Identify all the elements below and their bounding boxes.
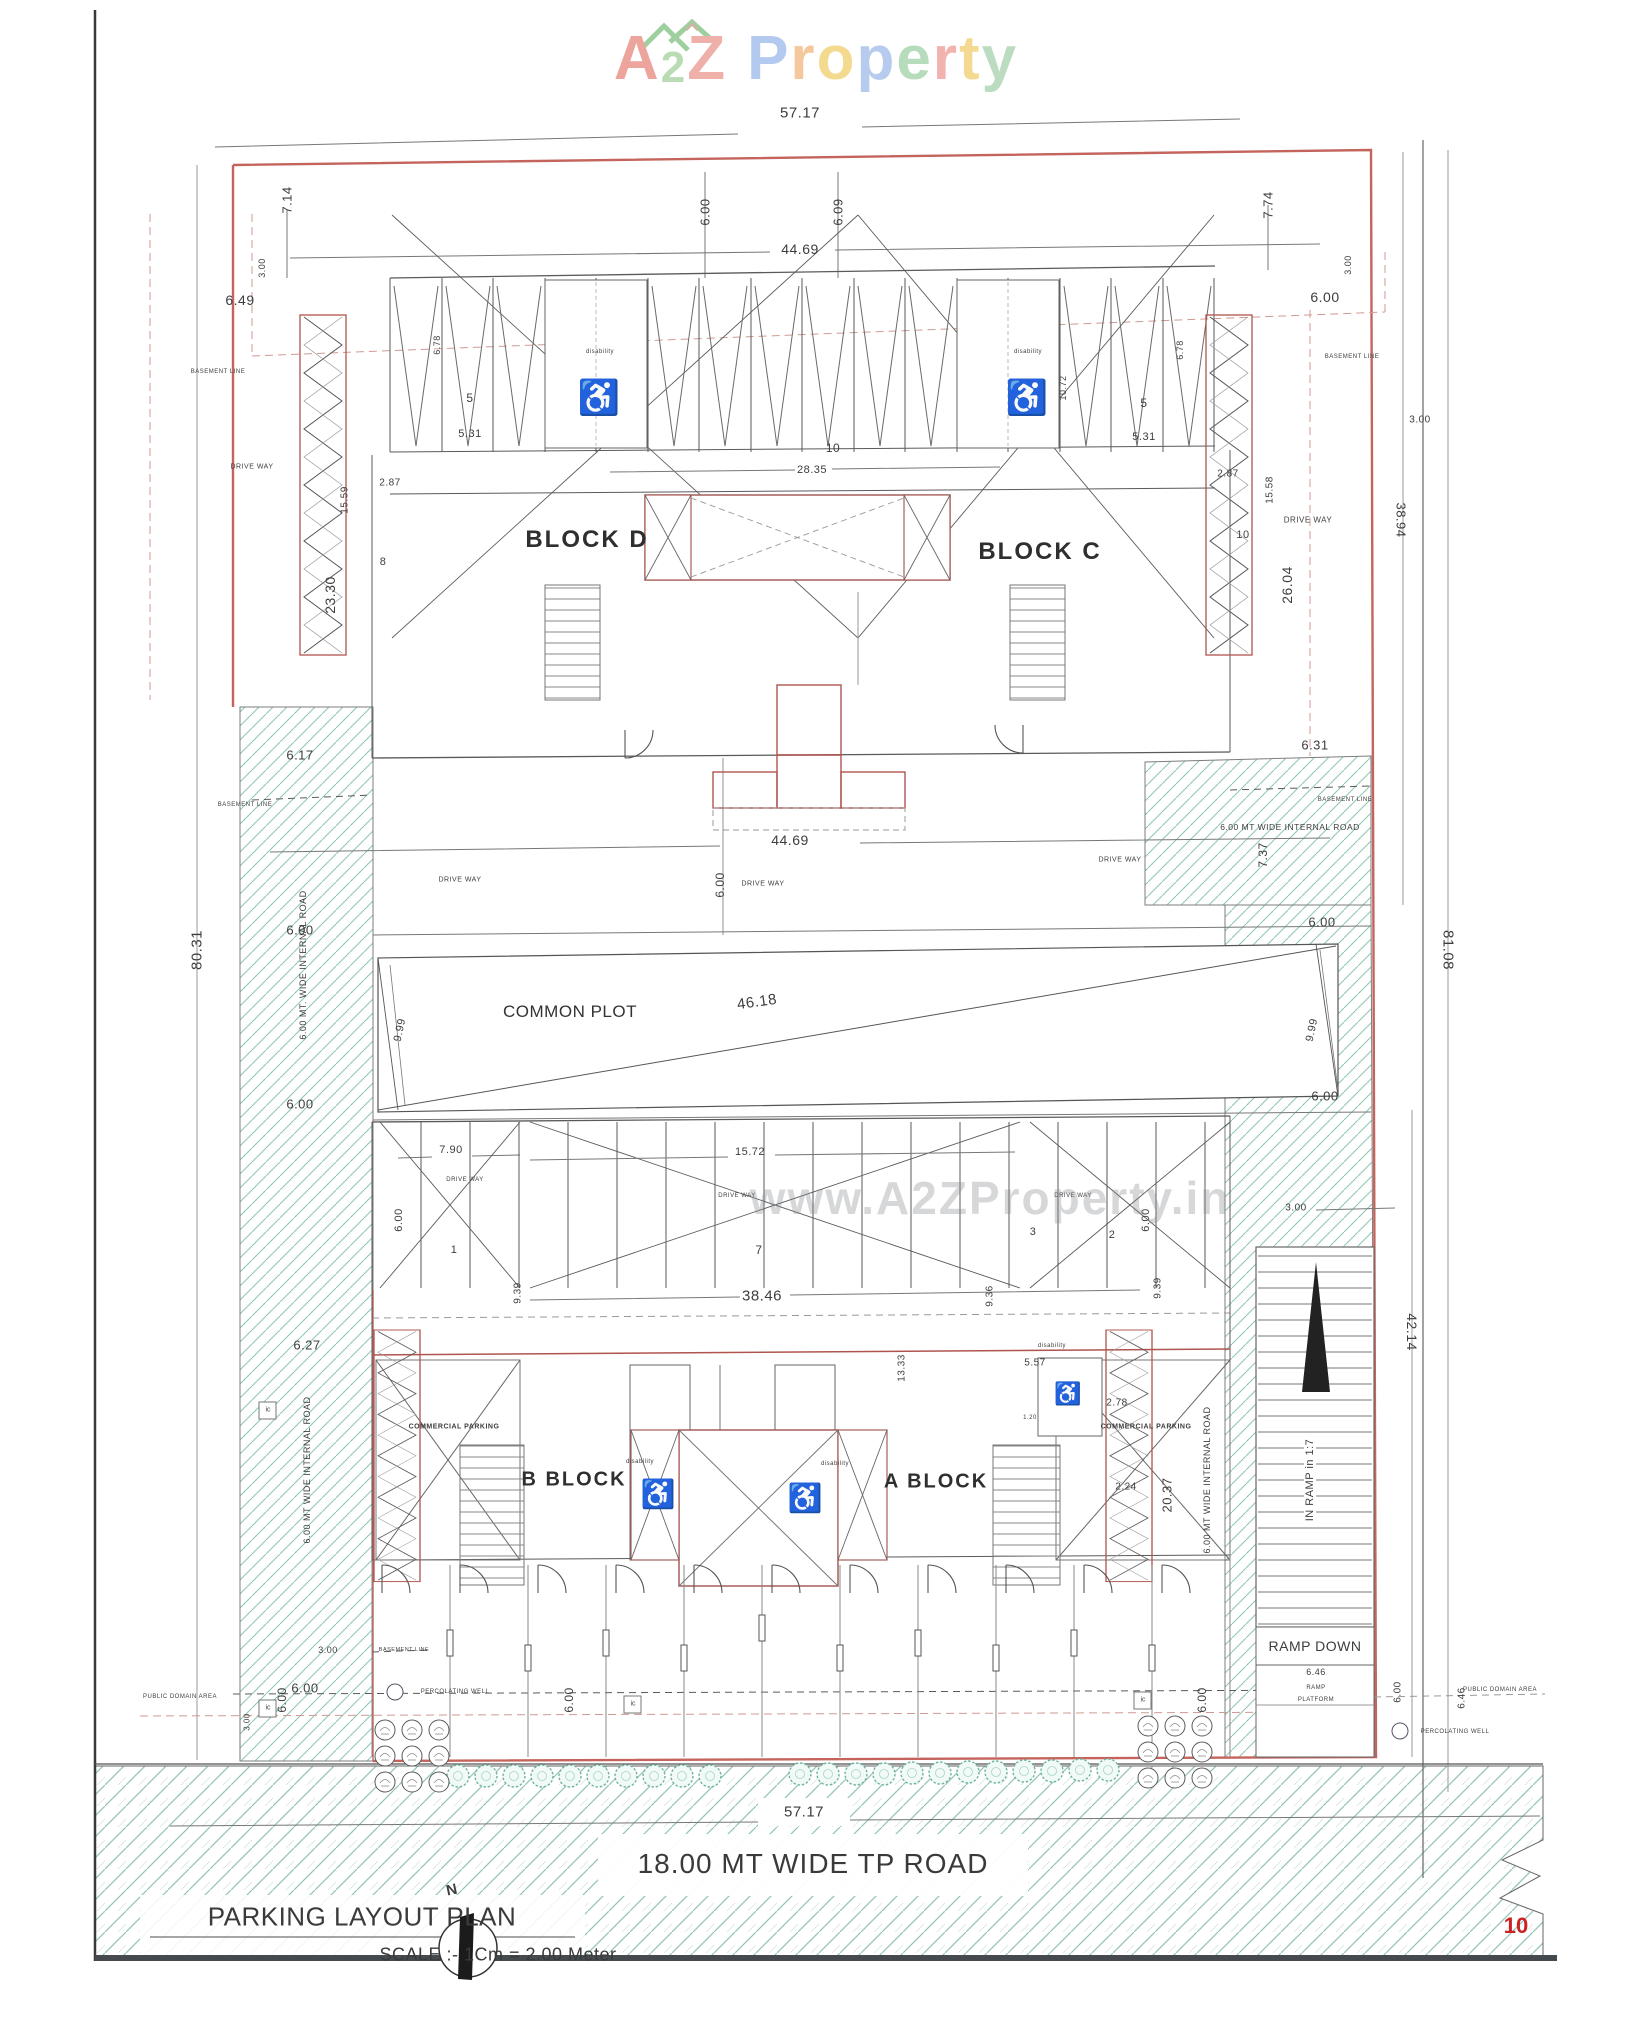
zigzag-stalls-lower-right — [1106, 1330, 1152, 1582]
dim: 6.00 — [291, 1681, 318, 1696]
dim: 5.57 — [1024, 1358, 1045, 1369]
zigzag-stalls-lower-left — [374, 1330, 420, 1582]
dim: 15.59 — [340, 486, 351, 514]
logo-letter: P — [747, 28, 788, 90]
drive-way-label: DRIVE WAY — [741, 881, 784, 888]
dim: 6.00 — [1393, 1681, 1404, 1702]
shrub-cluster-left — [375, 1720, 449, 1792]
drive-way-label: DRIVE WAY — [1098, 857, 1141, 864]
inspection-chamber-label: ic — [265, 1705, 270, 1712]
dim: 20.37 — [1160, 1477, 1175, 1512]
stall-number: 3 — [1030, 1226, 1037, 1238]
disability-label: disability — [586, 349, 614, 355]
internal-road-label: 6.00 MT. WIDE INTERNAL ROAD — [298, 890, 308, 1039]
basement-line-label: BASEMENT LINE — [218, 802, 272, 808]
dim: 2.87 — [379, 478, 400, 489]
dim: 3.00 — [318, 1645, 338, 1655]
inspection-chamber-label: ic — [1140, 1697, 1145, 1704]
drive-way-label: DRIVE WAY — [438, 877, 481, 884]
dim: 44.69 — [771, 832, 809, 848]
dim: 10.72 — [1058, 375, 1068, 400]
percolating-well-label: PERCOLATING WELL — [1421, 1729, 1490, 1735]
dim: 6.00 — [713, 872, 727, 897]
basement-line-label: BASEMENT LINE — [1325, 354, 1379, 360]
common-plot-label: COMMON PLOT — [503, 1002, 637, 1022]
staircase-b-block — [460, 1445, 524, 1585]
dim: 6.00 — [393, 1208, 405, 1231]
basement-line-label: BASEMENT LINE — [191, 369, 245, 375]
dim: 3.00 — [1343, 255, 1353, 275]
dim: 9.36 — [985, 1285, 996, 1306]
logo-letter: Z — [687, 28, 725, 90]
dim: 6.78 — [1175, 340, 1185, 360]
dim: 7.14 — [280, 186, 295, 213]
dim: 7.90 — [439, 1144, 462, 1156]
sheet-scale: SCALE :- 1Cm = 2.00 Meter — [379, 1945, 616, 1966]
drive-way-label: DRIVE WAY — [230, 464, 273, 471]
public-domain-label: PUBLIC DOMAIN AREA — [143, 1694, 217, 1700]
logo-letter: y — [982, 28, 1016, 90]
block-c-label: BLOCK C — [978, 538, 1101, 566]
logo-letter: r — [790, 28, 814, 90]
dim: 6.49 — [225, 292, 254, 308]
wheelchair-icon: ♿ — [1006, 378, 1048, 418]
dim: 2.24 — [1115, 1482, 1136, 1493]
dim: 6.09 — [831, 198, 846, 225]
dim: 6.31 — [1301, 738, 1328, 753]
logo-letter: A — [614, 28, 659, 90]
dim: 6.00 — [1308, 915, 1335, 930]
dim: 3.00 — [257, 258, 267, 278]
dim-plot-height-right: 81.08 — [1440, 930, 1457, 970]
dim: 1.20 — [1023, 1415, 1037, 1421]
disability-label: disability — [626, 1459, 654, 1465]
commercial-parking-label: COMMERCIAL PARKING — [409, 1424, 500, 1431]
dim: 9.39 — [1153, 1277, 1164, 1298]
staircase-block-c — [1010, 585, 1065, 700]
dim: 6.00 — [1195, 1687, 1209, 1712]
stall-number: 5 — [466, 391, 473, 405]
basement-line-label: BASEMENT LINE — [379, 1647, 429, 1653]
stall-number: 8 — [380, 556, 387, 568]
dim-plot-height-left: 80.31 — [189, 930, 206, 970]
b-block-label: B BLOCK — [521, 1469, 626, 1492]
dim: 38.46 — [742, 1288, 782, 1305]
sheet-title: PARKING LAYOUT PLAN — [208, 1902, 517, 1933]
dim: 26.04 — [1279, 566, 1295, 604]
internal-road-label: 6.00 MT WIDE INTERNAL ROAD — [302, 1396, 312, 1543]
inspection-chamber-label: ic — [265, 1407, 270, 1414]
stall-number: 7 — [755, 1243, 762, 1257]
dim: 2.87 — [1217, 469, 1238, 480]
tp-road-label: 18.00 MT WIDE TP ROAD — [638, 1848, 989, 1880]
parking-layout-sheet: 57.17 44.69 7.14 6.00 6.09 7.74 3.00 3.0… — [0, 0, 1652, 2027]
ramp-label: RAMP — [1306, 1685, 1325, 1691]
dim: 6.00 — [1310, 289, 1339, 305]
dim: 6.27 — [293, 1338, 320, 1353]
dim-plot-width-top: 57.17 — [780, 105, 820, 122]
dim: 6.78 — [432, 335, 442, 355]
disability-label: disability — [821, 1461, 849, 1467]
a-block-label: A BLOCK — [884, 1471, 988, 1494]
dim: 13.33 — [897, 1354, 908, 1382]
percolating-well-icon — [1392, 1723, 1408, 1739]
dim: 7.74 — [1261, 191, 1276, 218]
dim: 2.78 — [1106, 1398, 1127, 1409]
dim: 28.35 — [797, 464, 827, 476]
dim: 3.00 — [1285, 1203, 1306, 1214]
wheelchair-icon: ♿ — [578, 378, 620, 418]
dim-building-width-top: 44.69 — [781, 241, 819, 257]
ramp-down-label: RAMP DOWN — [1269, 1638, 1362, 1654]
entrance-porch — [713, 685, 905, 808]
dim: 5.31 — [1132, 431, 1155, 443]
dim: 23.30 — [322, 576, 338, 614]
stall-number: 2 — [1109, 1229, 1116, 1241]
shop-windows — [447, 1615, 1155, 1671]
dim: 38.94 — [1394, 502, 1409, 537]
wheelchair-icon: ♿ — [1054, 1381, 1081, 1407]
logo-letter: p — [856, 28, 894, 90]
drive-way-label: DRIVE WAY — [446, 1177, 484, 1183]
percolating-well-icon — [387, 1684, 403, 1700]
shrub-cluster-right — [1138, 1716, 1212, 1788]
inspection-chamber-label: ic — [630, 1701, 635, 1708]
commercial-parking-label: COMMERCIAL PARKING — [1101, 1424, 1192, 1431]
dim: 6.00 — [286, 1097, 313, 1112]
dim: 3.00 — [1409, 415, 1430, 426]
stall-number: 5 — [1140, 396, 1147, 410]
logo-letter: o — [817, 28, 855, 90]
staircase-block-d — [545, 585, 600, 700]
internal-road-left-hatch — [240, 707, 373, 1761]
watermark: www.A2ZProperty.in — [750, 1171, 1231, 1225]
common-plot — [378, 944, 1338, 1112]
dim: 3.00 — [243, 1713, 252, 1731]
logo-letter: r — [933, 28, 957, 90]
dim: 7.37 — [1256, 842, 1270, 867]
public-domain-label: PUBLIC DOMAIN AREA — [1463, 1687, 1537, 1693]
percolating-well-label: PERCOLATING WELL — [421, 1689, 490, 1695]
disability-label: disability — [1014, 349, 1042, 355]
dim: 6.00 — [698, 198, 713, 225]
dim: 15.58 — [1265, 476, 1276, 504]
stall-number: 1 — [451, 1244, 458, 1256]
dim: 15.72 — [735, 1146, 765, 1158]
stall-number: 10 — [826, 441, 840, 455]
dim: 6.00 — [275, 1687, 289, 1712]
dim: 6.00 — [562, 1687, 576, 1712]
dim: 42.14 — [1404, 1313, 1420, 1351]
a2z-property-logo: A 2 Z P r o p e r t y — [560, 12, 1070, 90]
disability-label: disability — [1038, 1343, 1066, 1349]
dim: 5.31 — [458, 428, 481, 440]
staircase-a-block — [993, 1445, 1060, 1585]
logo-letter: e — [896, 28, 930, 90]
drive-way-label: DRIVE WAY — [1284, 516, 1333, 525]
basement-line-label: BASEMENT LINE — [1318, 797, 1372, 803]
dim: 6.00 — [1311, 1089, 1338, 1104]
dim: 6.46 — [1306, 1667, 1326, 1677]
dim: 6.17 — [286, 748, 313, 763]
internal-road-label: 6.00 MT WIDE INTERNAL ROAD — [1202, 1406, 1212, 1553]
in-ramp-label: IN RAMP in 1:7 — [1304, 1436, 1316, 1525]
page-number: 10 — [1504, 1913, 1528, 1939]
platform-label: PLATFORM — [1298, 1697, 1334, 1703]
dim-plot-width-bottom: 57.17 — [784, 1804, 824, 1821]
wheelchair-icon: ♿ — [788, 1482, 823, 1515]
dim: 9.39 — [513, 1282, 524, 1303]
zigzag-stalls-upper-right — [1206, 315, 1252, 655]
logo-letter: t — [959, 28, 980, 90]
block-d-label: BLOCK D — [525, 526, 648, 554]
stall-number: 10 — [1236, 529, 1249, 541]
wheelchair-icon: ♿ — [641, 1478, 676, 1511]
logo-letter: 2 — [661, 46, 685, 90]
internal-road-label: 6.00 MT WIDE INTERNAL ROAD — [1220, 822, 1360, 832]
